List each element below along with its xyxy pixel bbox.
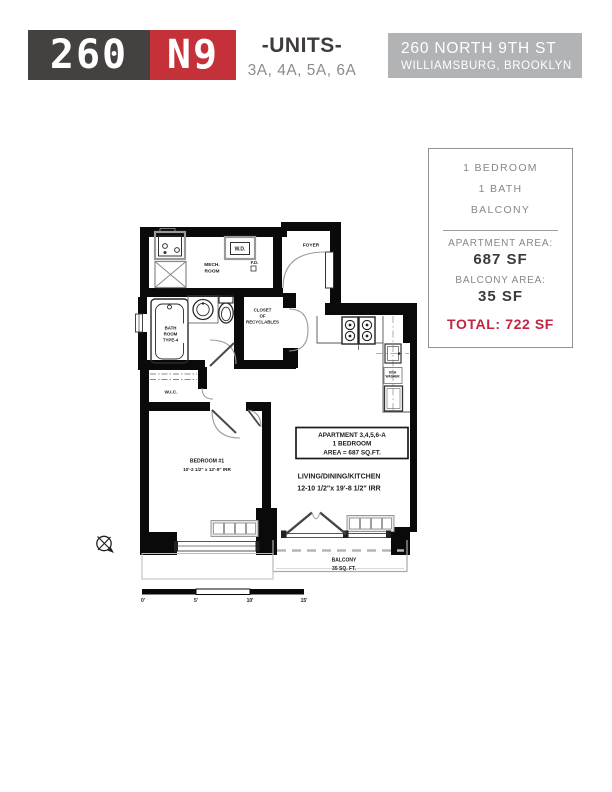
total-label: TOTAL: xyxy=(447,316,501,332)
toilet-tank xyxy=(219,296,233,303)
feature-baths: 1 BATH xyxy=(429,179,572,200)
boiler-dial xyxy=(163,244,168,249)
apartment-box-line2: 1 BEDROOM xyxy=(333,441,372,448)
balcony-area-text: 35 SQ. FT. xyxy=(332,566,357,572)
toilet-bowl xyxy=(219,303,233,323)
apartment-area-value: 687 SF xyxy=(429,251,572,268)
total-value: 722 SF xyxy=(505,316,554,332)
scale-tick-0: 0' xyxy=(141,598,145,604)
bath-sink-faucet xyxy=(202,302,204,304)
feature-bedrooms: 1 BEDROOM xyxy=(429,158,572,179)
address-box: 260 NORTH 9TH ST WILLIAMSBURG, BROOKLYN xyxy=(388,33,582,78)
counter-left xyxy=(317,316,342,343)
floorplan-page: 260 N9 -UNITS- 3A, 4A, 5A, 6A 260 NORTH … xyxy=(0,0,612,792)
stove-right xyxy=(359,317,375,344)
north-arrow-icon xyxy=(97,536,114,553)
bedroom-door-leaf xyxy=(212,410,236,433)
scale-bar: 0' 5' 10' 15' xyxy=(141,589,307,604)
entry-door-arc xyxy=(283,252,326,288)
balcony-door-arc xyxy=(312,513,320,519)
scale-tick-5: 5' xyxy=(194,598,198,604)
units-title: -UNITS- xyxy=(236,34,368,58)
balcony-door-leaf-right xyxy=(320,513,346,535)
building-logo: 260 N9 xyxy=(28,30,236,80)
burner-3-dot xyxy=(366,324,369,327)
balcony-area-value: 35 SF xyxy=(429,288,572,305)
entry-door-leaf xyxy=(326,252,334,288)
logo-260: 260 xyxy=(28,30,150,80)
scale-tick-10: 10' xyxy=(247,598,254,604)
living-room-label: LIVING/DINING/KITCHEN xyxy=(298,474,381,481)
closet-label-1: CLOSET xyxy=(254,308,272,313)
bath-label-3: TYPE-4 xyxy=(163,338,179,343)
floor-drain-symbol xyxy=(251,266,256,271)
logo-n9: N9 xyxy=(150,30,236,80)
scale-seg-1 xyxy=(142,589,196,595)
tub-faucet xyxy=(168,305,172,309)
scale-seg-2 xyxy=(196,589,250,595)
apartment-box-line1: APARTMENT 3,4,5,6-A xyxy=(318,432,386,439)
bath-label-2: ROOM xyxy=(164,332,178,337)
living-window-panes xyxy=(350,518,392,529)
toilet-bowl-inner xyxy=(221,307,230,321)
door-post-left xyxy=(281,531,287,539)
bath-door-leaf xyxy=(210,343,234,366)
wic-label: W.I.C. xyxy=(164,390,177,396)
unit-info-panel: 1 BEDROOM 1 BATH BALCONY APARTMENT AREA:… xyxy=(428,148,573,348)
window-post xyxy=(386,531,391,539)
burner-2-dot xyxy=(349,335,352,338)
floor-plan-drawing: 0' 5' 10' 15' FOYER MECH. ROOM F.D. W.D.… xyxy=(80,215,425,615)
wic-door-arc xyxy=(202,388,213,399)
lower-slab-outline xyxy=(142,554,273,580)
closet-door-arc-upper xyxy=(289,309,308,330)
apartment-box-line3: AREA = 687 SQ.FT. xyxy=(323,450,381,457)
kitchen-fixtures xyxy=(317,316,410,412)
boiler-panel xyxy=(159,236,182,256)
floor-drain-label: F.D. xyxy=(251,260,259,265)
closet-label-3: RECYCLABLES xyxy=(246,320,279,325)
kitchen-sink-faucet xyxy=(398,352,401,355)
units-block: -UNITS- 3A, 4A, 5A, 6A xyxy=(236,34,368,80)
bedroom-label: BEDROOM #1 xyxy=(190,459,224,465)
burner-1-dot xyxy=(349,324,352,327)
balcony-door-leaf-left xyxy=(286,513,312,535)
window-cap-right xyxy=(256,541,260,552)
total-area: TOTAL: 722 SF xyxy=(429,316,572,332)
mech-fixtures xyxy=(155,229,256,288)
washer-dryer-label: W.D. xyxy=(235,247,246,253)
bath-sink-basin xyxy=(197,303,209,315)
foyer-label: FOYER xyxy=(303,243,320,249)
units-list: 3A, 4A, 5A, 6A xyxy=(236,62,368,80)
refrigerator-inner xyxy=(387,389,400,409)
mech-room-label-2: ROOM xyxy=(205,269,220,275)
living-room-dims: 12-10 1/2"x 19'-8 1/2" IRR xyxy=(297,486,380,493)
panel-divider xyxy=(443,230,558,231)
closet-label-2: OF xyxy=(259,314,265,319)
balcony-area-label: BALCONY AREA: xyxy=(429,275,572,286)
apartment-area-label: APARTMENT AREA: xyxy=(429,238,572,249)
boiler-dial-2 xyxy=(175,248,180,253)
bedroom-window-panes xyxy=(214,523,256,534)
burner-4-dot xyxy=(366,335,369,338)
boiler-dot xyxy=(164,251,167,254)
stove-left xyxy=(342,317,358,344)
window-cap-left xyxy=(174,541,178,552)
bath-label-1: BATH xyxy=(165,326,177,331)
balcony-label: BALCONY xyxy=(332,558,357,564)
address-city: WILLIAMSBURG, BROOKLYN xyxy=(401,60,582,72)
bedroom-dims: 10'-2 1/2" x 12'-9" IRR xyxy=(183,467,231,472)
wic-shelves xyxy=(150,374,197,380)
mech-room-label-1: MECH. xyxy=(204,262,219,268)
address-street: 260 NORTH 9TH ST xyxy=(401,40,582,58)
walls xyxy=(138,222,417,555)
scale-seg-3 xyxy=(250,589,304,595)
feature-balcony: BALCONY xyxy=(429,200,572,221)
scale-tick-15: 15' xyxy=(301,598,308,604)
dishwasher-label-2: WASHER xyxy=(386,375,401,379)
closet-door-arc-lower xyxy=(289,330,308,351)
